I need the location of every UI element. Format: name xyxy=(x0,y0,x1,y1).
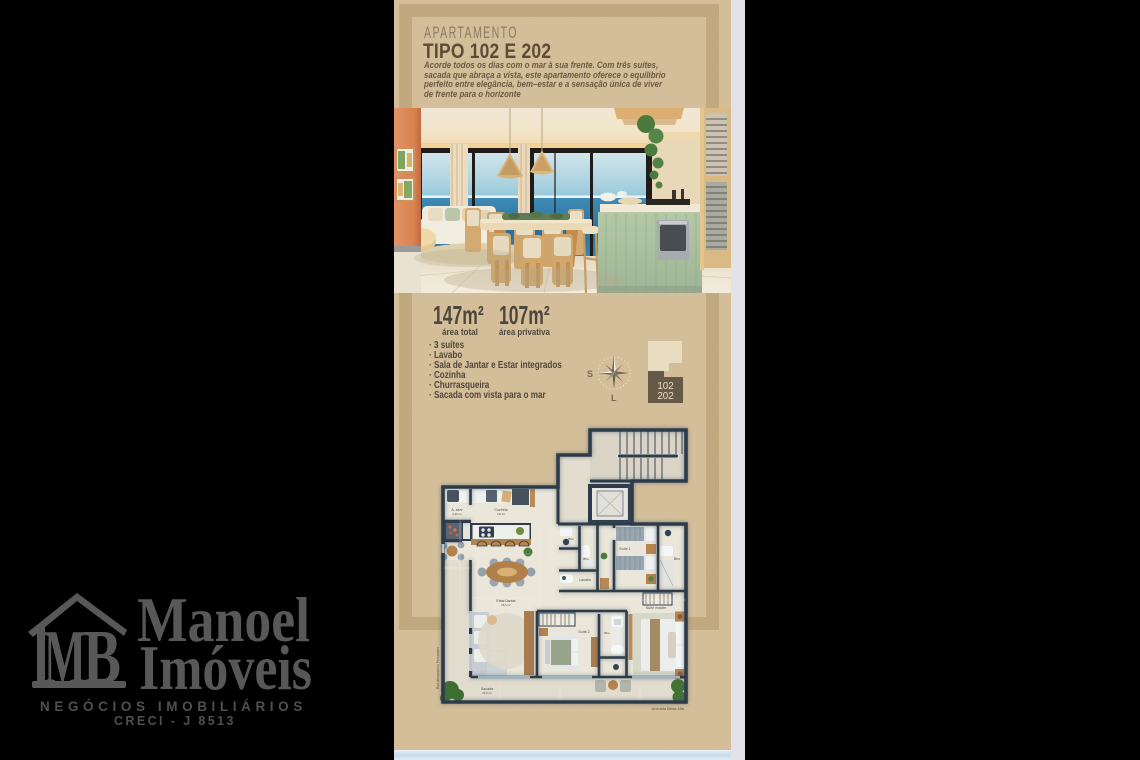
svg-text:3,10 m²: 3,10 m² xyxy=(452,512,462,516)
svg-text:Bho: Bho xyxy=(674,557,680,561)
svg-text:B: B xyxy=(83,614,121,700)
svg-text:26,5 m²: 26,5 m² xyxy=(501,603,511,607)
svg-text:202: 202 xyxy=(657,391,673,402)
svg-text:CRECI - J 8513: CRECI - J 8513 xyxy=(114,714,236,728)
svg-text:Suíte 1: Suíte 1 xyxy=(619,547,630,551)
svg-text:M: M xyxy=(44,614,86,700)
svg-text:NEGÓCIOS IMOBILIÁRIOS: NEGÓCIOS IMOBILIÁRIOS xyxy=(40,699,307,714)
svg-text:Rua Alexandrino Fernandes: Rua Alexandrino Fernandes xyxy=(436,647,440,689)
svg-text:9,8 m²: 9,8 m² xyxy=(497,512,505,516)
svg-text:Bho: Bho xyxy=(583,557,589,561)
svg-text:Avenida Beira Mar: Avenida Beira Mar xyxy=(651,706,686,711)
svg-text:Lavabo: Lavabo xyxy=(579,578,591,582)
svg-text:Suíte 2: Suíte 2 xyxy=(578,630,589,634)
svg-text:Suíte master: Suíte master xyxy=(646,606,667,610)
svg-text:Bho: Bho xyxy=(568,537,574,541)
svg-text:Bho: Bho xyxy=(604,631,610,635)
svg-text:23,6 m²: 23,6 m² xyxy=(482,691,492,695)
svg-text:Imóveis: Imóveis xyxy=(139,633,312,703)
svg-text:L: L xyxy=(611,393,617,403)
svg-text:S: S xyxy=(587,369,593,379)
